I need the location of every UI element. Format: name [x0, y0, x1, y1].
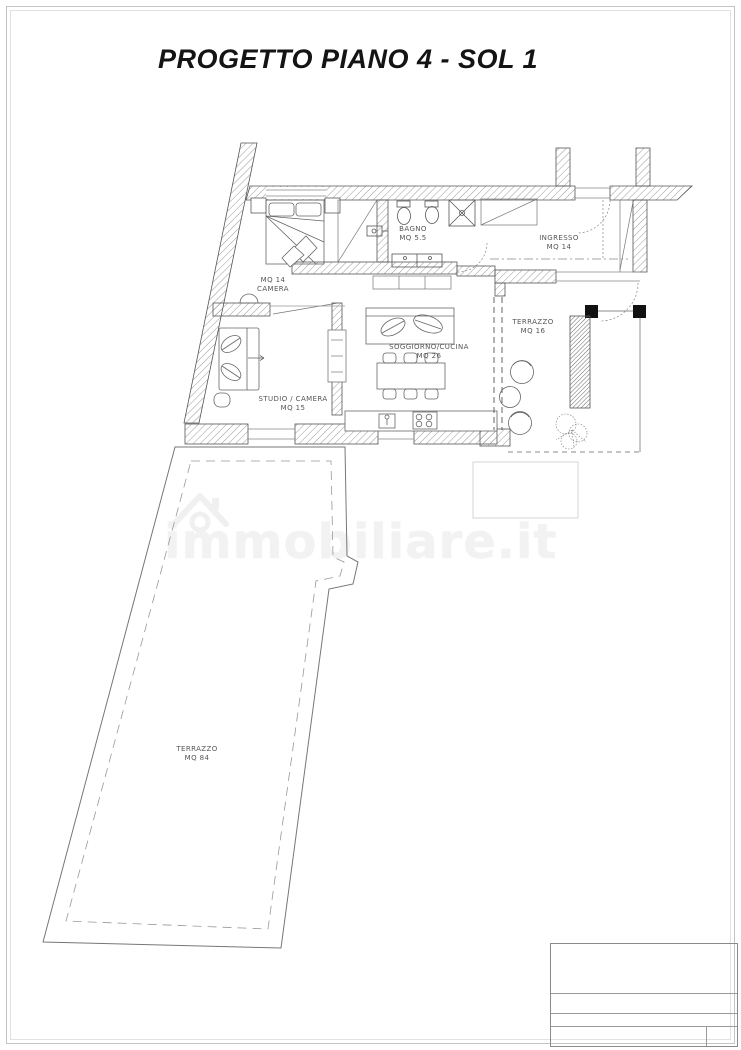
- title-block-divider: [551, 1026, 737, 1027]
- planter-icon: [570, 316, 590, 408]
- terrace-chair-icon: [509, 412, 532, 435]
- svg-text:MQ 14: MQ 14: [547, 243, 572, 251]
- bidet-icon: [425, 201, 438, 207]
- tree-icon: [556, 414, 587, 449]
- terrace-small: [473, 305, 646, 518]
- terrazzo-door-arc: [600, 283, 638, 321]
- terrace-large: [43, 447, 358, 948]
- floor-plan-page: PROGETTO PIANO 4 - SOL 1 immobiliare.it: [0, 0, 741, 1050]
- wall-bottom-a: [185, 424, 248, 444]
- wall-bottom-d: [480, 429, 510, 446]
- floor-plan: MQ 14 CAMERA BAGNO MQ 5.5 INGRESSO MQ 14…: [0, 0, 741, 1050]
- svg-text:MQ 5.5: MQ 5.5: [399, 234, 426, 242]
- entrance-door-arc: [577, 200, 610, 233]
- label-terrazzo-16: TERRAZZO: [511, 318, 553, 326]
- sofa-bed-icon: [219, 328, 259, 390]
- label-soggiorno: SOGGIORNO/CUCINA: [389, 343, 469, 351]
- title-block: [550, 943, 738, 1047]
- label-camera: MQ 14: [261, 276, 286, 284]
- label-terrazzo-84: TERRAZZO: [175, 745, 217, 753]
- wall-top-right: [610, 186, 692, 200]
- svg-text:MQ 84: MQ 84: [185, 754, 210, 762]
- dining-table-icon: [377, 363, 445, 389]
- title-block-divider: [551, 993, 737, 994]
- glass-wall: [494, 297, 502, 430]
- label-ingresso: INGRESSO: [539, 234, 579, 242]
- terrace-outline: [43, 447, 358, 948]
- wall-diagonal-left: [184, 143, 257, 423]
- wall-terrazzo16-top: [495, 270, 556, 283]
- terrace-table-icon: [500, 387, 521, 408]
- svg-text:CAMERA: CAMERA: [257, 285, 289, 293]
- railing-post: [633, 305, 646, 318]
- kitchen-counter: [345, 411, 497, 431]
- sofa-icon: [366, 308, 454, 344]
- wall-glass-top-stub: [495, 283, 505, 296]
- label-bagno: BAGNO: [399, 225, 427, 233]
- title-block-divider-vertical: [706, 1026, 707, 1046]
- svg-text:MQ 16: MQ 16: [521, 327, 546, 335]
- camera-door-leaf: [273, 303, 338, 314]
- roof-patch: [473, 462, 578, 518]
- title-block-divider: [551, 1013, 737, 1014]
- terrace-parapet: [66, 461, 344, 929]
- svg-text:MQ 15: MQ 15: [281, 404, 306, 412]
- wall-stub-a: [556, 148, 570, 186]
- doors: [270, 200, 638, 321]
- label-studio: STUDIO / CAMERA: [258, 395, 327, 403]
- living-furniture: [345, 308, 497, 431]
- toilet-icon: [397, 201, 410, 207]
- wall-camera-studio: [213, 303, 270, 316]
- window-pier-left: [251, 198, 266, 213]
- wall-hall-bottom: [457, 266, 495, 276]
- wall-stub-b: [636, 148, 650, 186]
- camera-basin: [240, 294, 258, 303]
- studio-furniture: [214, 328, 264, 407]
- wall-right-ingresso: [633, 200, 647, 272]
- svg-text:MQ 26: MQ 26: [417, 352, 442, 360]
